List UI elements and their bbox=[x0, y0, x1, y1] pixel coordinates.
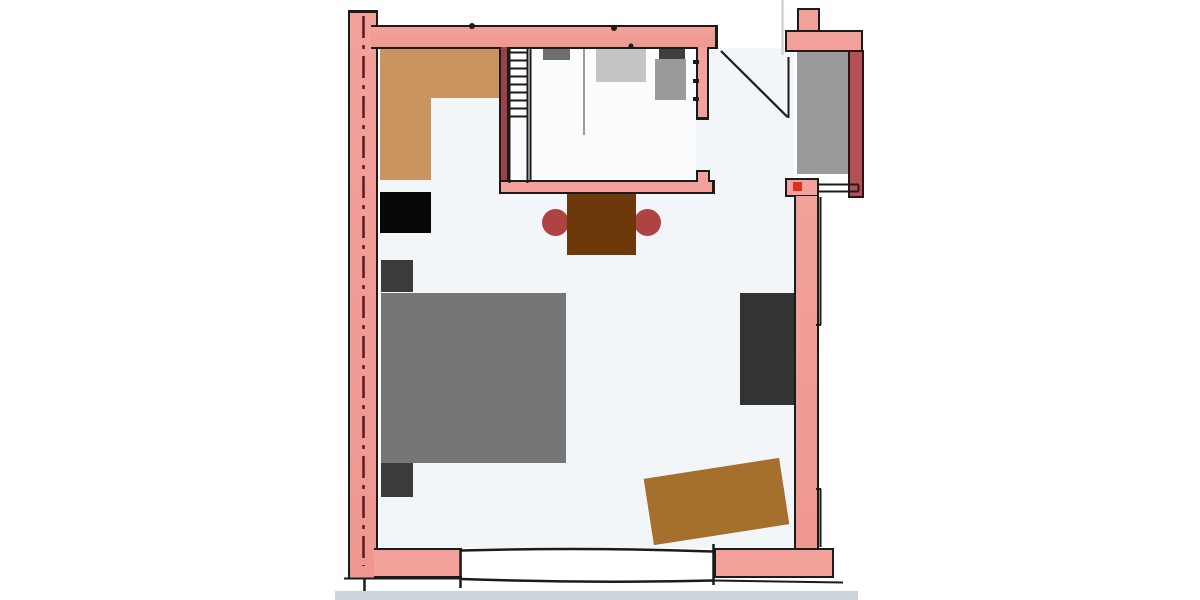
wall-top bbox=[371, 25, 718, 49]
niche-wall-right bbox=[848, 50, 864, 198]
topright-wall-bar bbox=[785, 30, 863, 52]
shelf-small-gray bbox=[543, 48, 570, 60]
black-unit bbox=[380, 192, 431, 233]
shelf-light-gray bbox=[596, 49, 646, 82]
wall-left bbox=[348, 10, 378, 578]
entry-niche-gray bbox=[797, 52, 848, 174]
closet-wall-left bbox=[499, 47, 509, 193]
page-bottom-edge bbox=[335, 591, 858, 600]
nightstand-top bbox=[381, 260, 413, 292]
red-paint-dot bbox=[793, 182, 802, 191]
wardrobe bbox=[740, 293, 797, 405]
chair-left bbox=[542, 209, 569, 236]
bed bbox=[381, 293, 566, 463]
bottom-opening-lines bbox=[461, 549, 713, 582]
nightstand-bottom bbox=[381, 463, 413, 497]
chair-right bbox=[634, 209, 661, 236]
divider-line bbox=[583, 48, 585, 135]
below-niche-bar bbox=[785, 178, 819, 197]
dining-table bbox=[567, 192, 636, 255]
wall-bottom-left bbox=[374, 548, 462, 578]
wall-right bbox=[794, 196, 819, 573]
topright-wall-stub bbox=[797, 8, 820, 31]
shelf-medium-gray bbox=[655, 59, 686, 100]
closet-wall-bottom bbox=[499, 180, 715, 194]
closet-wall-right bbox=[696, 47, 709, 120]
shelf-dark-gray bbox=[659, 48, 685, 59]
closet-wall-notch bbox=[696, 170, 710, 182]
closet-tan-top bbox=[380, 47, 500, 98]
bottom-right-ext-line bbox=[713, 581, 843, 583]
floor-plan-scan bbox=[0, 0, 1200, 600]
closet-tan-side bbox=[380, 98, 431, 180]
wall-bottom-right bbox=[713, 548, 834, 578]
